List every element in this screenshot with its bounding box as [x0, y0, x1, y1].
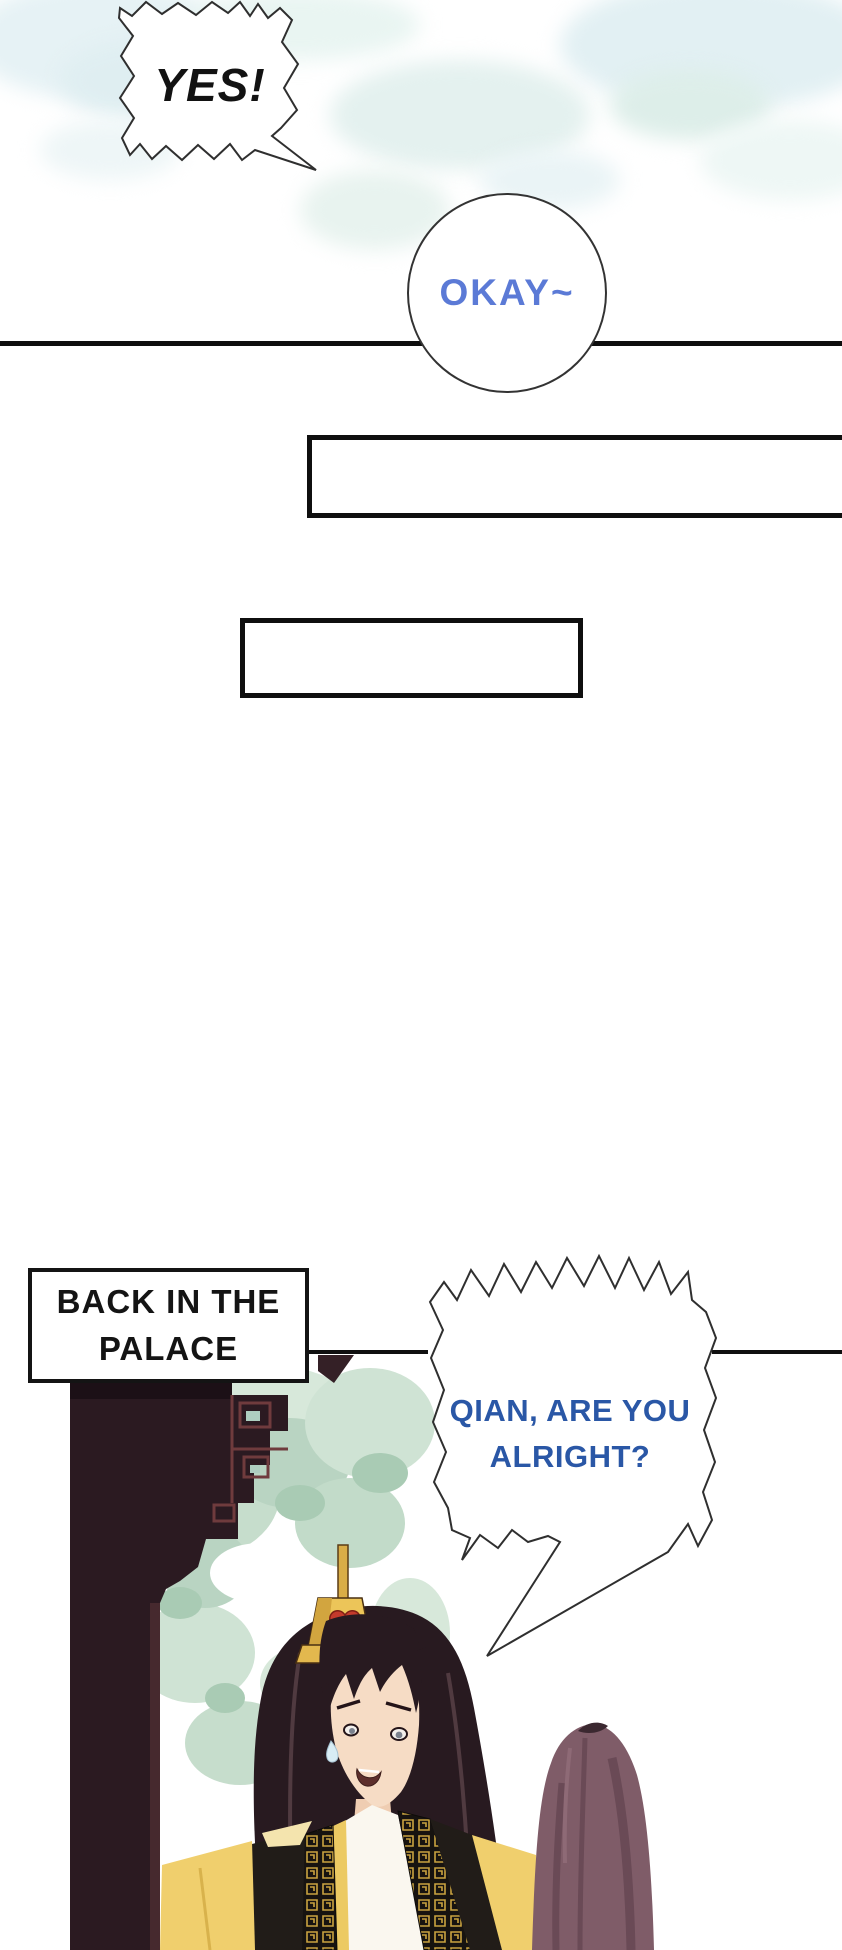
empress-hair — [532, 1724, 654, 1950]
empty-panel-small — [240, 618, 583, 698]
panel-border-right — [712, 1350, 842, 1354]
qian-bubble-text: QIAN, ARE YOU ALRIGHT? — [438, 1388, 702, 1480]
empress-figure — [532, 1723, 654, 1950]
qian-bubble-line-2: ALRIGHT? — [438, 1434, 702, 1480]
okay-bubble-text: OKAY~ — [407, 269, 607, 317]
qian-bubble-line-1: QIAN, ARE YOU — [438, 1388, 702, 1434]
caption-line-2: PALACE — [32, 1325, 305, 1372]
empty-panel-wide — [307, 435, 842, 518]
caption-line-1: BACK IN THE — [32, 1278, 305, 1325]
yes-bubble-text: YES! — [130, 57, 290, 113]
comic-page: YES! OKAY~ — [0, 0, 842, 1950]
panel-border-left — [300, 1350, 428, 1354]
caption-box: BACK IN THE PALACE — [28, 1268, 309, 1383]
